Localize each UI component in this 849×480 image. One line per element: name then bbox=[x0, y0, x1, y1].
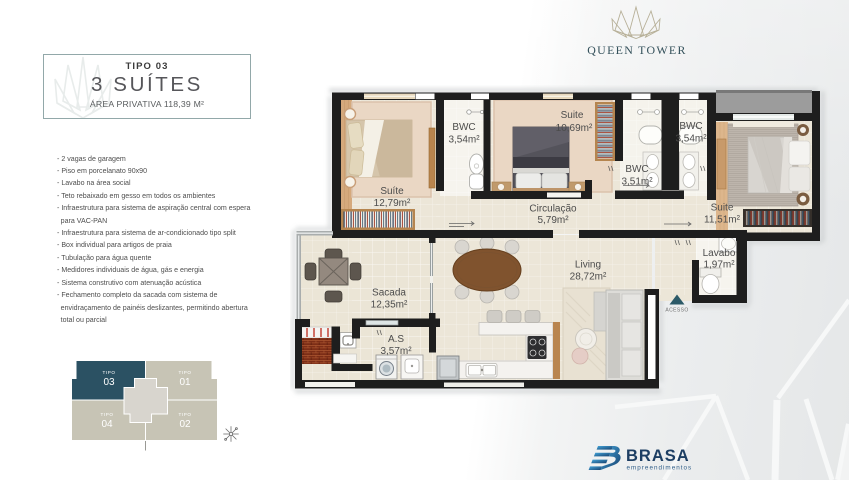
svg-text:BRASA: BRASA bbox=[626, 447, 690, 465]
svg-text:5,79m²: 5,79m² bbox=[537, 215, 569, 226]
svg-text:empreendimentos: empreendimentos bbox=[627, 465, 693, 472]
svg-text:3,54m²: 3,54m² bbox=[448, 135, 480, 146]
svg-text:Living: Living bbox=[575, 260, 601, 271]
svg-text:BWC: BWC bbox=[452, 122, 475, 133]
svg-text:3,57m²: 3,57m² bbox=[380, 346, 412, 357]
svg-text:TIPO: TIPO bbox=[178, 412, 191, 417]
svg-text:Suite: Suite bbox=[711, 203, 734, 214]
svg-text:28,72m²: 28,72m² bbox=[570, 272, 607, 283]
svg-text:Suite: Suite bbox=[561, 110, 584, 121]
svg-text:QUEEN TOWER: QUEEN TOWER bbox=[587, 43, 686, 57]
svg-text:1,97m²: 1,97m² bbox=[703, 260, 735, 271]
svg-text:3,51m²: 3,51m² bbox=[621, 177, 653, 188]
svg-text:ACESSO: ACESSO bbox=[665, 308, 688, 314]
svg-text:01: 01 bbox=[179, 377, 191, 388]
svg-text:02: 02 bbox=[179, 419, 191, 430]
svg-text:Sacada: Sacada bbox=[372, 288, 406, 299]
svg-text:BWC: BWC bbox=[679, 121, 702, 132]
svg-text:11,51m²: 11,51m² bbox=[704, 215, 741, 226]
svg-text:3,54m²: 3,54m² bbox=[675, 134, 707, 145]
svg-text:TIPO: TIPO bbox=[100, 412, 113, 417]
svg-text:TIPO: TIPO bbox=[102, 370, 115, 375]
svg-text:A.S: A.S bbox=[388, 334, 404, 345]
svg-text:BWC: BWC bbox=[625, 164, 648, 175]
svg-text:12,79m²: 12,79m² bbox=[374, 198, 411, 209]
svg-text:10,69m²: 10,69m² bbox=[556, 123, 593, 134]
svg-text:Lavabo: Lavabo bbox=[703, 248, 736, 259]
svg-text:Suíte: Suíte bbox=[380, 186, 404, 197]
svg-text:04: 04 bbox=[101, 419, 113, 430]
svg-text:Circulação: Circulação bbox=[529, 204, 577, 215]
svg-text:12,35m²: 12,35m² bbox=[371, 300, 408, 311]
svg-text:TIPO: TIPO bbox=[178, 370, 191, 375]
svg-text:03: 03 bbox=[103, 377, 115, 388]
